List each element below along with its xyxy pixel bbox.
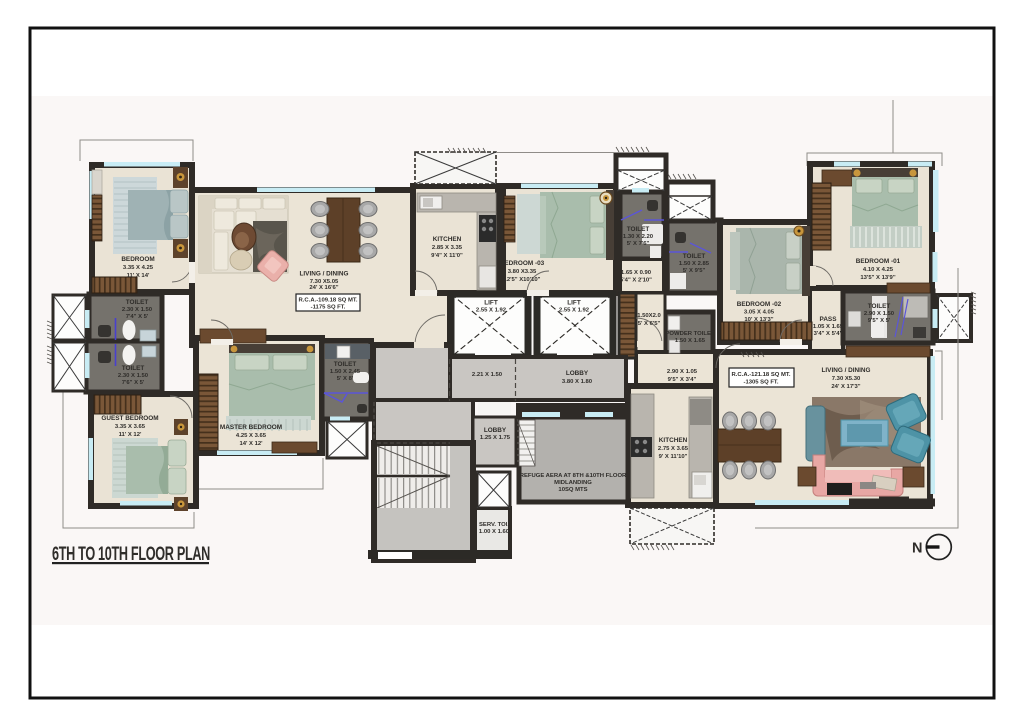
svg-text:1.65 X 0.90: 1.65 X 0.90 (621, 270, 652, 276)
svg-text:1.50 X 2.85: 1.50 X 2.85 (679, 261, 710, 267)
svg-text:24' X 17'3": 24' X 17'3" (831, 384, 860, 390)
svg-text:1.25 X 1.75: 1.25 X 1.75 (480, 435, 511, 441)
svg-text:MIDLANDING: MIDLANDING (554, 480, 592, 486)
svg-text:2.30 X 1.50: 2.30 X 1.50 (122, 307, 153, 313)
svg-text:KITCHEN: KITCHEN (659, 437, 688, 444)
svg-text:-1175 SQ FT.: -1175 SQ FT. (311, 305, 346, 311)
svg-text:3.80 X3.35: 3.80 X3.35 (508, 269, 537, 275)
svg-text:3.05 X 4.05: 3.05 X 4.05 (744, 310, 775, 316)
svg-text:2.90 X 1.50: 2.90 X 1.50 (864, 311, 895, 317)
svg-text:2.21 X 1.50: 2.21 X 1.50 (472, 372, 503, 378)
svg-text:TOILET: TOILET (868, 303, 891, 310)
svg-text:9' X 11'10": 9' X 11'10" (659, 454, 688, 460)
svg-text:3.80 X 1.80: 3.80 X 1.80 (562, 379, 593, 385)
svg-text:TOILET: TOILET (683, 253, 706, 260)
svg-text:5' X 6'5": 5' X 6'5" (638, 321, 661, 327)
svg-text:2.75 X 3.65: 2.75 X 3.65 (658, 446, 689, 452)
svg-text:5'4" X 2'10": 5'4" X 2'10" (620, 278, 652, 284)
svg-text:4.10 X 4.25: 4.10 X 4.25 (863, 267, 894, 273)
svg-text:TOILET: TOILET (122, 365, 145, 372)
svg-text:KITCHEN: KITCHEN (433, 236, 462, 243)
svg-text:1.00 X 1.60: 1.00 X 1.60 (479, 529, 510, 535)
svg-text:-1305 SQ FT.: -1305 SQ FT. (743, 380, 778, 386)
svg-text:MASTER BEDROOM: MASTER BEDROOM (220, 424, 282, 431)
svg-text:TOILET: TOILET (334, 361, 357, 368)
svg-text:5' X 9'5": 5' X 9'5" (683, 268, 706, 274)
svg-text:1.50 X 2.45: 1.50 X 2.45 (330, 369, 361, 375)
svg-text:24' X 16'6": 24' X 16'6" (309, 285, 338, 291)
svg-text:6TH TO 10TH FLOOR PLAN: 6TH TO 10TH FLOOR PLAN (52, 543, 210, 565)
svg-text:TOILET: TOILET (126, 299, 149, 306)
svg-text:BEDROOM -03: BEDROOM -03 (500, 260, 545, 267)
svg-text:LIVING / DINING: LIVING / DINING (822, 367, 871, 374)
svg-text:REFUGE AERA AT 8TH &10TH FLOOR: REFUGE AERA AT 8TH &10TH FLOOR (520, 473, 627, 479)
svg-text:10SQ MTS: 10SQ MTS (558, 487, 587, 493)
svg-text:10' X 13'3": 10' X 13'3" (744, 317, 773, 323)
svg-text:7.30 X5.30: 7.30 X5.30 (832, 376, 861, 382)
svg-text:9'5" X 3'4": 9'5" X 3'4" (668, 377, 697, 383)
svg-text:BEDROOM -01: BEDROOM -01 (856, 258, 901, 265)
svg-text:SERV. TOI.: SERV. TOI. (479, 522, 509, 528)
svg-text:LOBBY: LOBBY (484, 427, 507, 434)
svg-text:12'5" X10'10": 12'5" X10'10" (504, 277, 541, 283)
svg-text:3.35 X 4.25: 3.35 X 4.25 (123, 265, 154, 271)
svg-text:1.30 X 2.20: 1.30 X 2.20 (623, 234, 654, 240)
svg-text:LIFT: LIFT (484, 300, 498, 307)
svg-text:R.C.A.-121.18 SQ MT.: R.C.A.-121.18 SQ MT. (732, 372, 791, 378)
svg-text:14' X 12': 14' X 12' (239, 441, 263, 447)
svg-text:13'5" X 13'9": 13'5" X 13'9" (860, 275, 895, 281)
svg-text:LIFT: LIFT (567, 300, 581, 307)
svg-text:11' X 14': 11' X 14' (127, 273, 150, 279)
svg-text:R.C.A.-109.18 SQ MT.: R.C.A.-109.18 SQ MT. (299, 298, 358, 304)
svg-text:LIVING / DINING: LIVING / DINING (300, 271, 349, 278)
svg-text:2.55 X 1.92: 2.55 X 1.92 (476, 308, 507, 314)
svg-text:2.30 X 1.50: 2.30 X 1.50 (118, 373, 149, 379)
svg-text:7'6" X 5': 7'6" X 5' (122, 380, 145, 386)
svg-text:9'5" X 5': 9'5" X 5' (868, 318, 891, 324)
svg-text:N: N (912, 541, 922, 557)
svg-text:2.55 X 1.92: 2.55 X 1.92 (559, 308, 590, 314)
svg-text:4.25 X 3.65: 4.25 X 3.65 (236, 433, 267, 439)
svg-text:BEDROOM -02: BEDROOM -02 (737, 301, 782, 308)
svg-text:PASS: PASS (820, 316, 838, 323)
svg-text:LOBBY: LOBBY (566, 370, 589, 377)
svg-text:1.05 X 1.65: 1.05 X 1.65 (813, 324, 844, 330)
svg-text:5' X 7'6": 5' X 7'6" (627, 241, 650, 247)
svg-text:5' X 8': 5' X 8' (337, 376, 354, 382)
svg-text:2.90 X 1.05: 2.90 X 1.05 (667, 369, 698, 375)
svg-text:POWDER TOILET: POWDER TOILET (666, 331, 715, 337)
svg-text:2.85 X 3.35: 2.85 X 3.35 (432, 245, 463, 251)
svg-text:11' X 12': 11' X 12' (119, 432, 142, 438)
svg-text:7'4" X 5': 7'4" X 5' (126, 314, 149, 320)
svg-text:1.50 X 1.65: 1.50 X 1.65 (675, 338, 706, 344)
svg-text:3.35 X 3.65: 3.35 X 3.65 (115, 424, 146, 430)
svg-text:1.50X2.0: 1.50X2.0 (637, 313, 661, 319)
svg-text:BEDROOM: BEDROOM (121, 256, 154, 263)
svg-text:TOILET: TOILET (627, 226, 650, 233)
svg-text:9'4" X 11'0": 9'4" X 11'0" (431, 253, 463, 259)
svg-text:GUEST BEDROOM: GUEST BEDROOM (101, 415, 158, 422)
svg-text:3'4" X 5'4": 3'4" X 5'4" (814, 331, 843, 337)
